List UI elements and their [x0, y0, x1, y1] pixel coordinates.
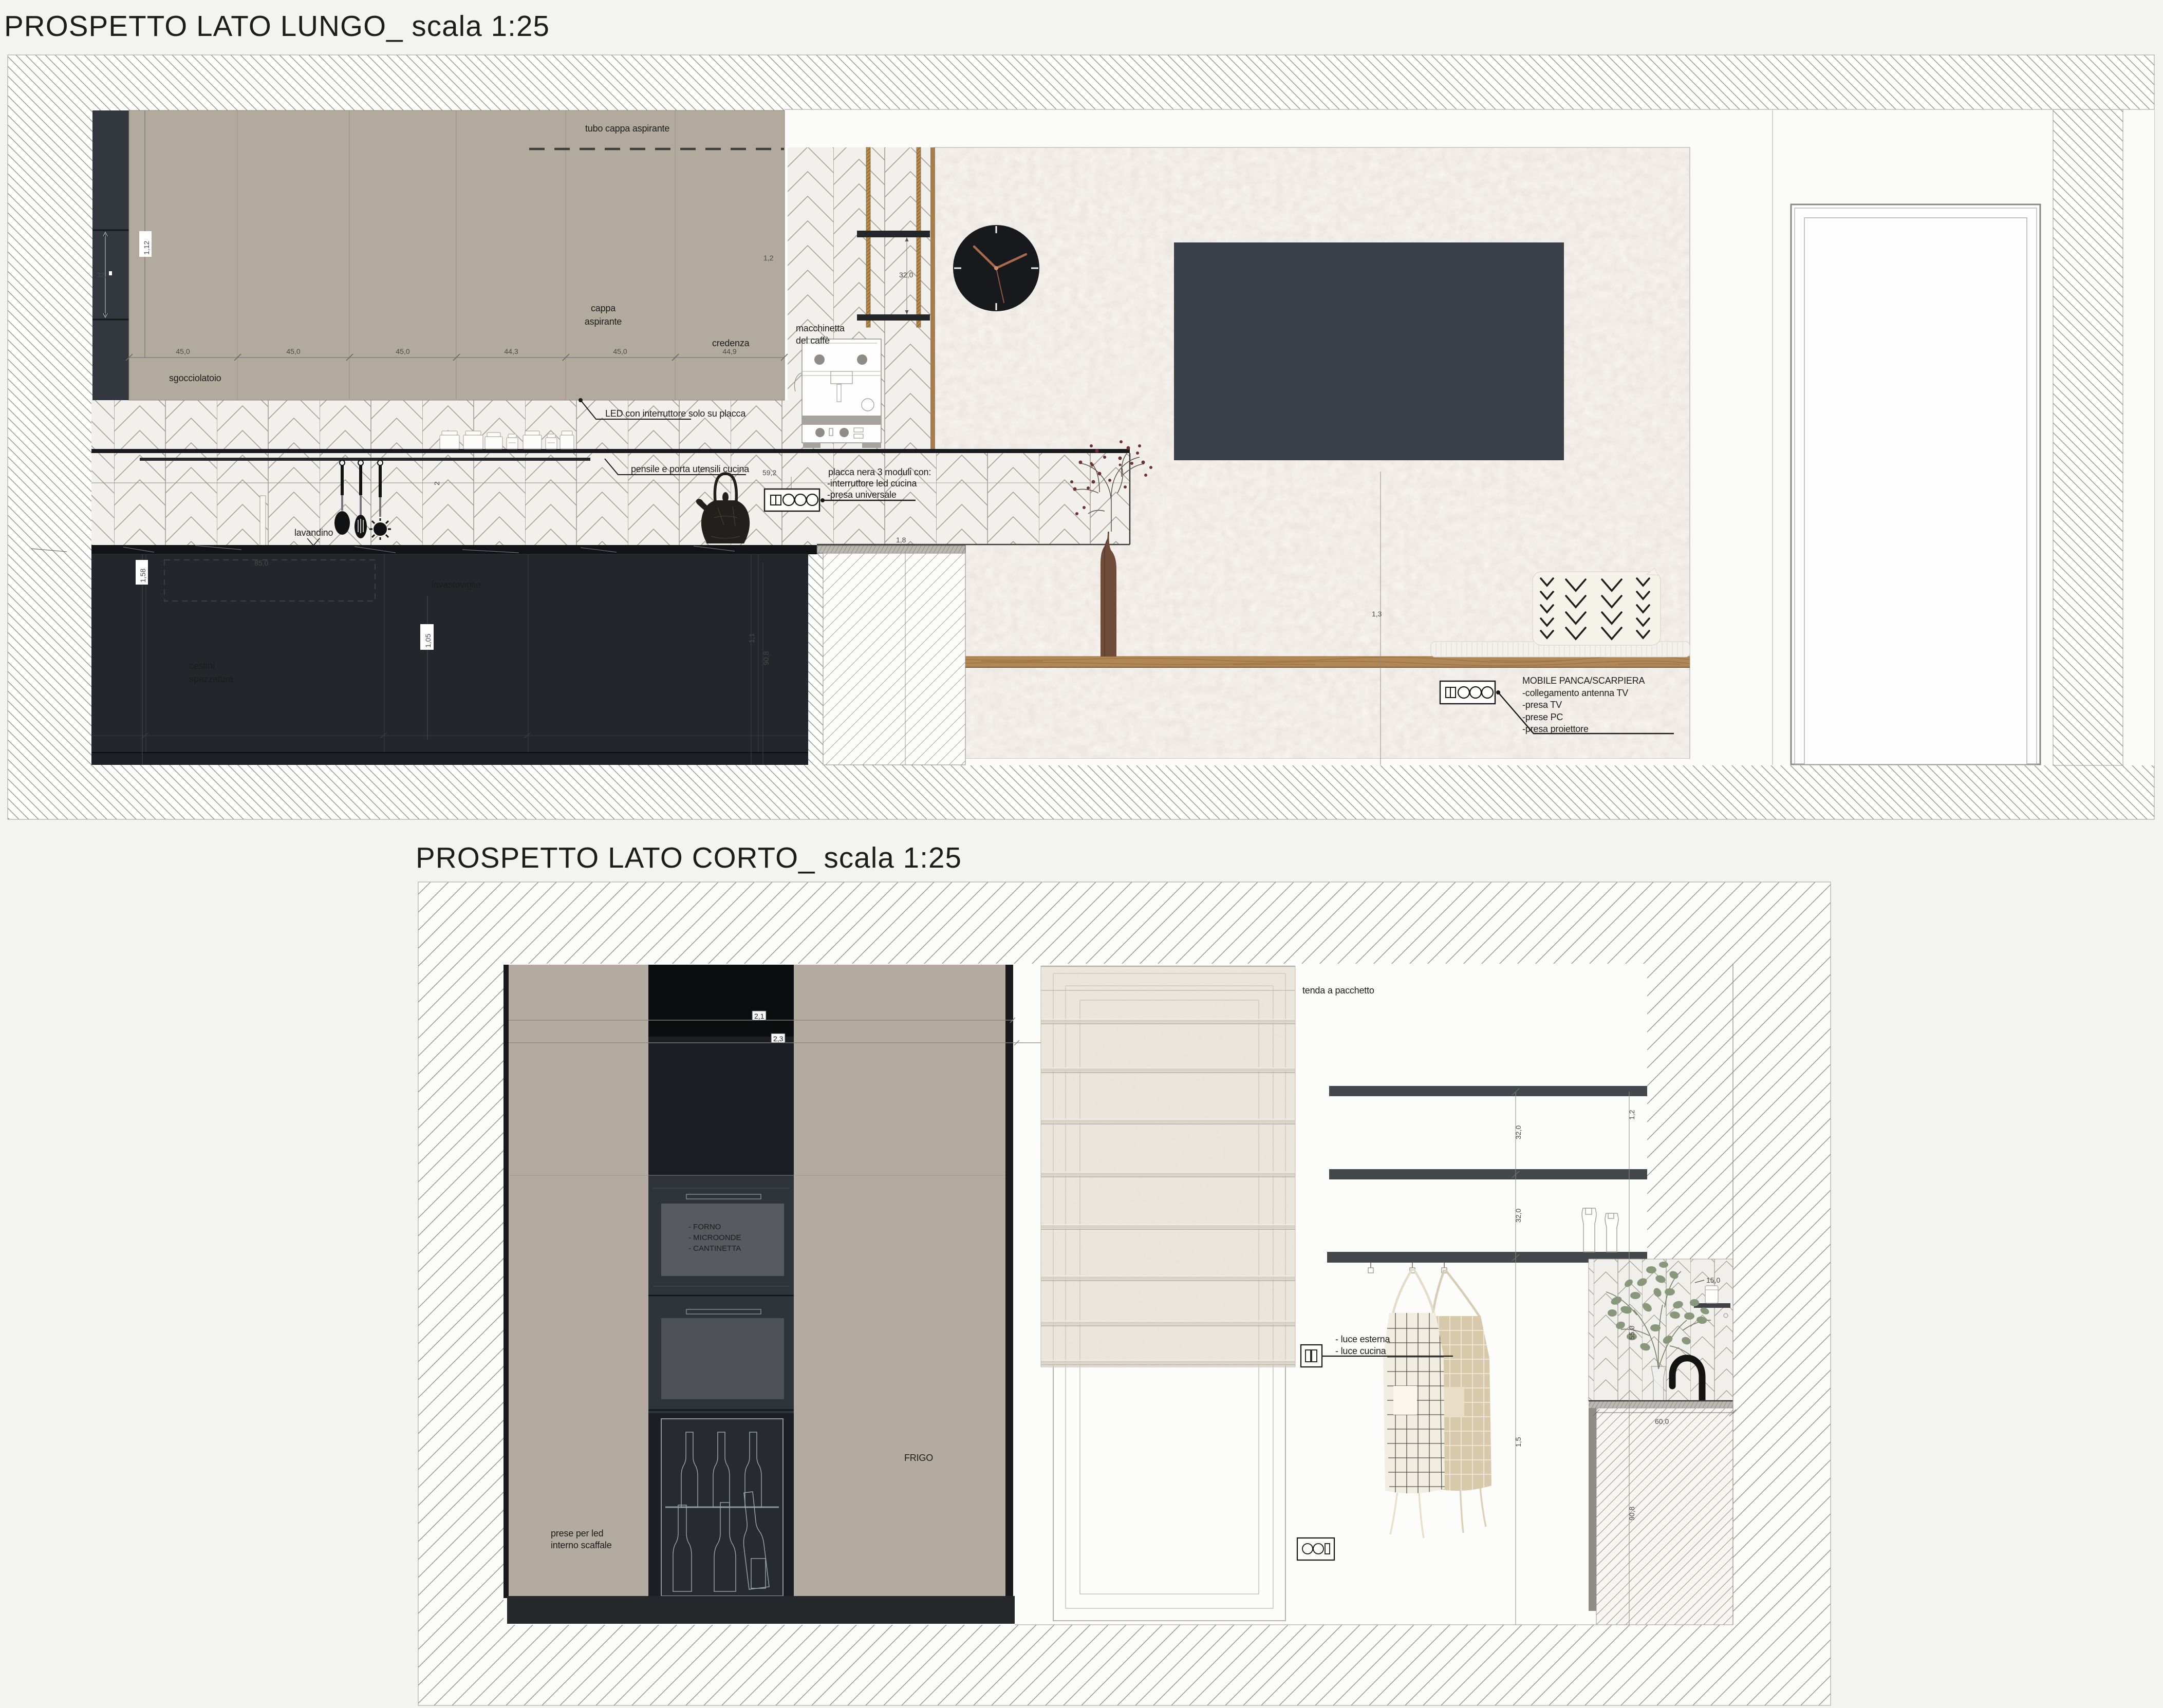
svg-text:1,5: 1,5	[1514, 1437, 1522, 1447]
svg-text:44,9: 44,9	[722, 347, 736, 355]
svg-text:- CANTINETTA: - CANTINETTA	[688, 1244, 741, 1253]
svg-text:macchinetta: macchinetta	[796, 323, 845, 333]
svg-text:sgocciolatoio: sgocciolatoio	[169, 373, 221, 383]
svg-text:2: 2	[433, 481, 441, 485]
svg-text:- MICROONDE: - MICROONDE	[688, 1233, 741, 1242]
svg-text:1,12: 1,12	[142, 241, 151, 255]
svg-text:32,0: 32,0	[1514, 1209, 1522, 1223]
svg-text:55,0: 55,0	[1628, 1326, 1636, 1340]
svg-text:aspirante: aspirante	[585, 316, 622, 327]
svg-text:PROSPETTO LATO CORTO_ scala 1:: PROSPETTO LATO CORTO_ scala 1:25	[416, 841, 962, 874]
svg-text:- luce esterna: - luce esterna	[1335, 1334, 1390, 1344]
svg-text:1,58: 1,58	[139, 569, 147, 583]
svg-text:spazzatura: spazzatura	[189, 674, 234, 684]
svg-text:-collegamento antenna TV: -collegamento antenna TV	[1522, 688, 1628, 698]
svg-text:32,: 32,	[97, 271, 106, 279]
svg-text:prese per led: prese per led	[551, 1528, 603, 1538]
svg-text:45,0: 45,0	[396, 347, 409, 355]
svg-text:1,2: 1,2	[1628, 1110, 1636, 1120]
svg-text:1,2: 1,2	[763, 254, 774, 262]
svg-text:pensile e porta utensili cucin: pensile e porta utensili cucina	[631, 464, 750, 474]
svg-text:- luce cucina: - luce cucina	[1335, 1346, 1387, 1356]
svg-text:PROSPETTO LATO LUNGO_ scala 1:: PROSPETTO LATO LUNGO_ scala 1:25	[4, 10, 550, 42]
svg-text:44,3: 44,3	[504, 347, 518, 355]
svg-text:45,0: 45,0	[613, 347, 627, 355]
svg-text:lavastoviglie: lavastoviglie	[432, 579, 481, 590]
svg-text:45,0: 45,0	[286, 347, 300, 355]
svg-text:lavandino: lavandino	[294, 528, 333, 538]
svg-text:85,0: 85,0	[254, 559, 268, 567]
svg-text:FRIGO: FRIGO	[904, 1453, 933, 1463]
svg-text:90,8: 90,8	[762, 651, 770, 665]
svg-text:tenda a pacchetto: tenda a pacchetto	[1302, 985, 1374, 996]
svg-text:MOBILE PANCA/SCARPIERA: MOBILE PANCA/SCARPIERA	[1522, 675, 1645, 686]
svg-text:1,3: 1,3	[1372, 610, 1382, 618]
svg-text:-interruttore led cucina: -interruttore led cucina	[827, 478, 917, 489]
svg-text:-presa universale: -presa universale	[827, 490, 897, 500]
svg-text:cestini: cestini	[189, 661, 215, 671]
svg-text:cappa: cappa	[591, 303, 616, 313]
svg-text:-prese PC: -prese PC	[1522, 712, 1563, 722]
svg-text:1,8: 1,8	[896, 536, 906, 544]
svg-text:32,0: 32,0	[1514, 1125, 1522, 1139]
svg-text:2,1: 2,1	[754, 1012, 764, 1020]
svg-text:del caffè: del caffè	[796, 335, 830, 346]
svg-text:2,3: 2,3	[773, 1035, 784, 1043]
svg-text:15,0: 15,0	[1706, 1276, 1720, 1284]
svg-text:-presa TV: -presa TV	[1522, 700, 1562, 710]
svg-text:interno scaffale: interno scaffale	[551, 1540, 612, 1550]
svg-text:tubo cappa aspirante: tubo cappa aspirante	[585, 123, 669, 134]
svg-text:1,1: 1,1	[748, 633, 756, 643]
svg-text:credenza: credenza	[712, 338, 750, 348]
svg-text:59,2: 59,2	[762, 468, 776, 477]
svg-text:60,0: 60,0	[1655, 1417, 1669, 1425]
svg-text:90,8: 90,8	[1628, 1507, 1636, 1521]
svg-text:placca nera 3 moduli con:: placca nera 3 moduli con:	[828, 467, 931, 477]
svg-text:LED con interruttore solo su p: LED con interruttore solo su placca	[605, 408, 746, 419]
svg-text:-presa proiettore: -presa proiettore	[1522, 724, 1589, 734]
svg-text:32,0: 32,0	[899, 271, 913, 279]
svg-text:1,05: 1,05	[424, 634, 432, 648]
svg-text:- FORNO: - FORNO	[688, 1223, 721, 1231]
svg-text:45,0: 45,0	[176, 347, 190, 355]
